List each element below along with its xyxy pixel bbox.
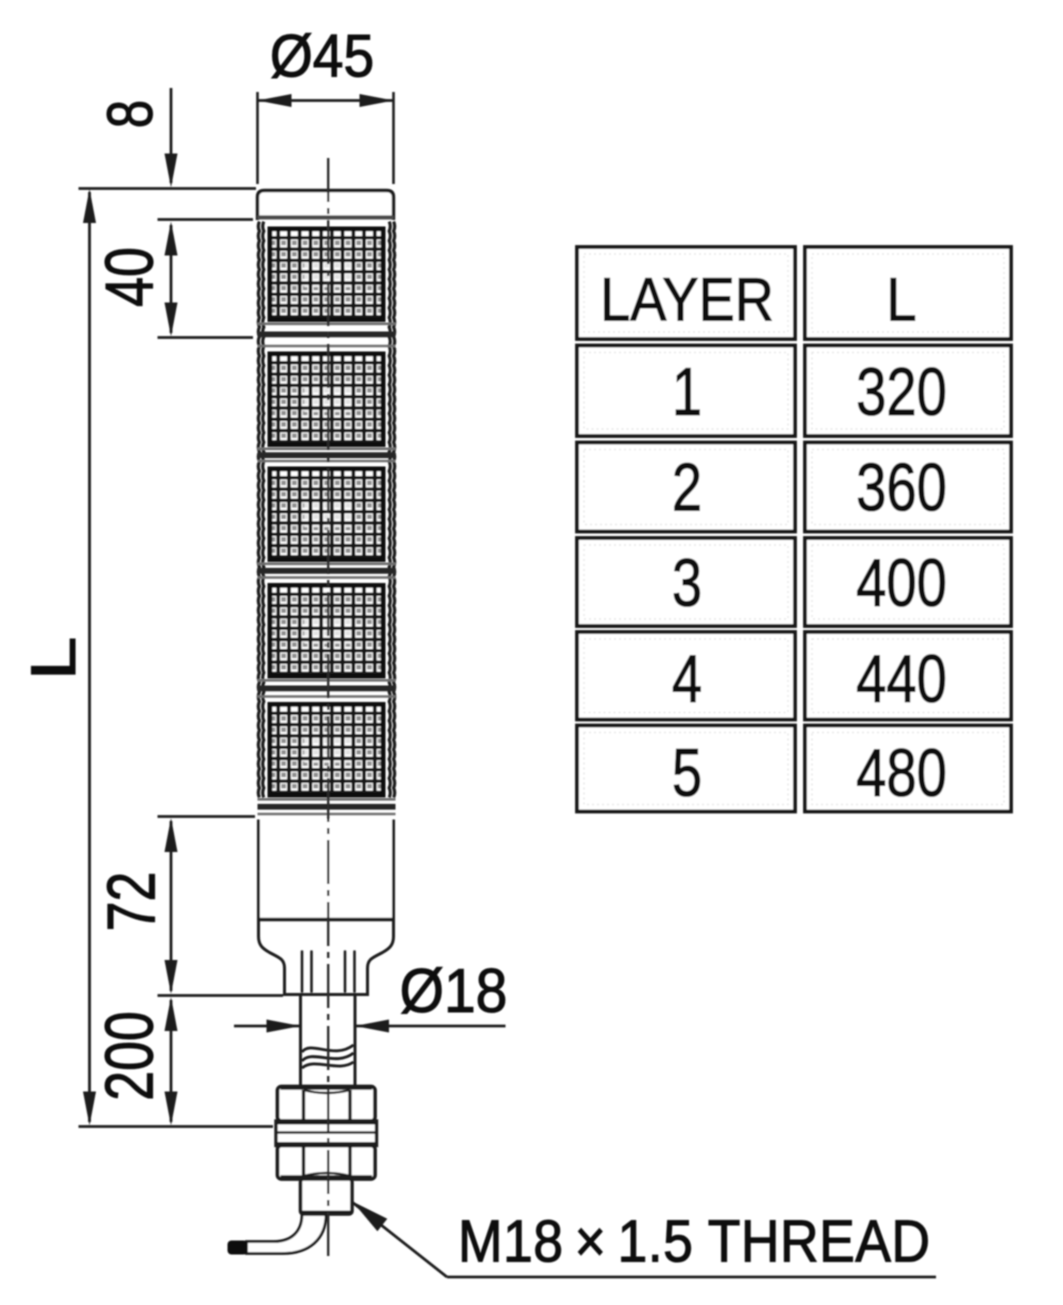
- svg-text:1: 1: [672, 354, 702, 430]
- svg-text:M18 × 1.5 THREAD: M18 × 1.5 THREAD: [458, 1208, 931, 1274]
- svg-text:400: 400: [856, 545, 947, 621]
- svg-text:Ø45: Ø45: [270, 23, 374, 90]
- svg-text:480: 480: [856, 735, 947, 811]
- svg-text:5: 5: [672, 735, 702, 811]
- svg-text:Ø18: Ø18: [400, 956, 508, 1026]
- svg-text:2: 2: [672, 450, 702, 526]
- svg-text:40: 40: [91, 247, 166, 307]
- svg-text:200: 200: [91, 1011, 166, 1101]
- svg-text:3: 3: [672, 545, 702, 621]
- svg-text:320: 320: [856, 354, 947, 430]
- svg-text:L: L: [886, 266, 916, 334]
- svg-text:4: 4: [672, 641, 702, 717]
- svg-text:72: 72: [93, 872, 168, 932]
- svg-text:440: 440: [856, 641, 947, 717]
- svg-text:8: 8: [96, 100, 167, 128]
- svg-text:L: L: [18, 637, 89, 681]
- svg-text:LAYER: LAYER: [600, 266, 774, 334]
- svg-text:360: 360: [856, 450, 947, 526]
